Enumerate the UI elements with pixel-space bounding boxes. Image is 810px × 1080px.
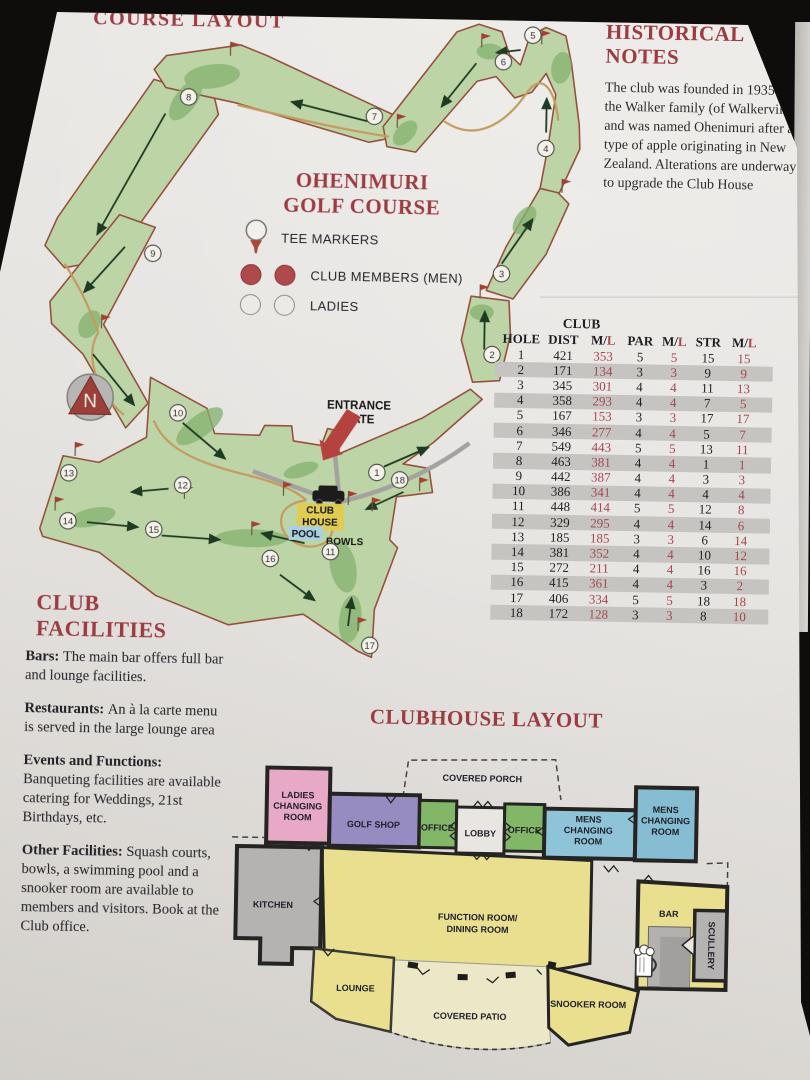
score-cell: 10	[722, 609, 756, 626]
score-cell: 185	[582, 530, 618, 547]
score-cell: 414	[582, 500, 618, 517]
score-cell: 8	[684, 608, 722, 625]
score-cell: 1	[725, 457, 759, 474]
score-cell: 293	[584, 393, 620, 410]
svg-text:BAR: BAR	[659, 909, 679, 919]
flag-icon	[75, 442, 84, 456]
svg-text:OFFICE: OFFICE	[421, 822, 454, 833]
svg-text:11: 11	[325, 547, 335, 558]
score-cell: 14	[724, 533, 758, 550]
score-cell: 3	[618, 531, 656, 548]
score-cell: 346	[540, 423, 584, 440]
score-cell: 353	[585, 348, 621, 365]
score-cell: 13	[687, 441, 725, 458]
score-table-group-header: CLUB	[541, 315, 621, 332]
score-cell: 128	[580, 606, 616, 623]
svg-text:SCULLERY: SCULLERY	[706, 922, 717, 970]
score-cell: 12	[498, 513, 538, 530]
score-col-header: HOLE	[501, 331, 541, 348]
ladies-tee-dot-icon	[240, 294, 261, 315]
score-cell: 4	[686, 486, 724, 503]
score-cell: 4	[620, 394, 658, 411]
score-cell: 4	[618, 485, 656, 502]
svg-text:13: 13	[63, 468, 74, 479]
entrance-gate-label: ENTRANCE	[327, 400, 391, 413]
historical-notes-title: HISTORICALNOTES	[605, 20, 810, 72]
historical-notes-body: The club was founded in 1935 by the Walk…	[603, 79, 810, 197]
score-cell: 185	[538, 529, 582, 546]
compass-icon: N	[67, 374, 114, 421]
page-content: CLUB HOUSE POOL BOWLS ENTRANCE GATE 1234…	[0, 0, 810, 1080]
score-cell: 4	[655, 547, 685, 564]
score-cell: 167	[540, 408, 584, 425]
score-cell: 463	[539, 453, 583, 470]
score-cell: 15	[689, 350, 727, 367]
score-cell: 5	[657, 440, 687, 457]
score-cell: 448	[538, 499, 582, 516]
svg-text:MENS: MENS	[575, 814, 601, 824]
svg-text:1: 1	[374, 468, 379, 479]
score-cell: 5	[616, 591, 654, 608]
facility-section: Restaurants: An à la carte menu is serve…	[24, 699, 227, 741]
hole-marker-9: 9	[144, 245, 161, 262]
svg-text:6: 6	[501, 57, 506, 68]
legend-ladies: LADIES	[240, 294, 490, 320]
score-cell: 415	[537, 575, 581, 592]
covered-patio	[389, 960, 552, 1051]
score-cell: 3	[620, 409, 658, 426]
score-cell: 5	[621, 349, 659, 366]
svg-text:CHANGING: CHANGING	[564, 825, 613, 836]
score-cell: 13	[726, 381, 760, 398]
score-cell: 381	[537, 544, 581, 561]
svg-text:MENS: MENS	[653, 805, 679, 815]
svg-text:LOUNGE: LOUNGE	[336, 983, 375, 994]
svg-text:CHANGING: CHANGING	[273, 801, 322, 812]
score-cell: 4	[617, 576, 655, 593]
score-cell: 277	[583, 424, 619, 441]
score-cell: 9	[727, 366, 761, 383]
score-cell: 171	[541, 362, 585, 379]
score-cell: 2	[501, 362, 541, 379]
score-cell: 4	[658, 395, 688, 412]
score-cell: 3	[500, 377, 540, 394]
score-cell: 6	[724, 518, 758, 535]
score-cell: 10	[498, 483, 538, 500]
hole-marker-8: 8	[180, 89, 197, 106]
score-cell: 3	[658, 410, 688, 427]
legend-tee-markers: TEE MARKERS	[241, 219, 492, 260]
svg-text:4: 4	[543, 144, 548, 155]
score-cell: 15	[727, 350, 761, 367]
score-col-header: M/L	[659, 334, 689, 351]
porch-stub-left	[232, 837, 264, 838]
svg-text:18: 18	[394, 475, 405, 486]
score-cell: 8	[724, 502, 758, 519]
club-facilities-sections: Bars: The main bar offers full bar and l…	[20, 647, 227, 940]
score-cell: 3	[616, 607, 654, 624]
score-cell: 6	[686, 532, 724, 549]
score-cell: 14	[686, 517, 724, 534]
score-cell: 5	[619, 440, 657, 457]
score-cell: 134	[585, 363, 621, 380]
score-cell: 352	[581, 545, 617, 562]
score-cell: 16	[497, 574, 537, 591]
historical-notes: HISTORICALNOTES The club was founded in …	[603, 20, 810, 197]
score-cell: 5	[687, 426, 725, 443]
clubhouse-floor-plan: COVERED PORCH	[220, 687, 779, 1075]
score-cell: 295	[582, 515, 618, 532]
club-facilities: CLUB FACILITIES Bars: The main bar offer…	[20, 589, 229, 954]
score-cell: 4	[620, 379, 658, 396]
score-cell: 1	[501, 346, 541, 363]
svg-text:N: N	[83, 391, 97, 412]
score-cell: 13	[498, 529, 538, 546]
score-cell: 341	[582, 485, 618, 502]
club-facilities-title: CLUB FACILITIES	[36, 589, 229, 645]
score-table: CLUB HOLEDISTM/LPARM/LSTRM/L 14213535515…	[490, 315, 788, 626]
score-cell: 14	[497, 544, 537, 561]
score-cell: 3	[725, 472, 759, 489]
score-cell: 358	[540, 393, 584, 410]
score-cell: 17	[688, 411, 726, 428]
svg-text:OFFICE: OFFICE	[508, 825, 541, 836]
map-title: OHENIMURI GOLF COURSE	[244, 167, 481, 221]
score-cell: 16	[723, 563, 757, 580]
score-cell: 4	[657, 425, 687, 442]
svg-text:15: 15	[148, 525, 159, 536]
score-cell: 18	[722, 593, 756, 610]
score-cell: 4	[619, 424, 657, 441]
photo-of-brochure: CLUB HOUSE POOL BOWLS ENTRANCE GATE 1234…	[0, 0, 810, 1080]
svg-text:7: 7	[372, 112, 377, 123]
hole-marker-7: 7	[366, 108, 383, 125]
svg-text:FUNCTION ROOM/: FUNCTION ROOM/	[438, 912, 518, 923]
hole-marker-10: 10	[170, 404, 187, 421]
svg-text:GOLF SHOP: GOLF SHOP	[347, 819, 400, 830]
score-cell: 4	[658, 380, 688, 397]
fairway-3	[486, 187, 569, 299]
legend-tee-label: TEE MARKERS	[281, 230, 379, 247]
score-cell: 1	[687, 456, 725, 473]
score-cell: 9	[499, 468, 539, 485]
score-cell: 16	[685, 562, 723, 579]
score-cell: 211	[581, 560, 617, 577]
svg-text:9: 9	[150, 249, 155, 260]
legend-club-members: CLUB MEMBERS (MEN)	[240, 264, 490, 290]
hole-marker-16: 16	[262, 550, 279, 567]
hole-marker-12: 12	[174, 477, 191, 494]
score-cell: 361	[581, 576, 617, 593]
score-cell: 5	[500, 407, 540, 424]
score-cell: 549	[539, 438, 583, 455]
score-cell: 12	[686, 502, 724, 519]
paper-crease	[540, 294, 800, 298]
score-cell: 5	[618, 500, 656, 517]
facility-section: Other Facilities: Squash courts, bowls, …	[20, 841, 224, 940]
svg-text:KITCHEN: KITCHEN	[253, 899, 293, 910]
score-cell: 4	[657, 456, 687, 473]
svg-text:17: 17	[364, 641, 375, 652]
svg-text:3: 3	[499, 269, 504, 280]
score-cell: 3	[654, 607, 684, 624]
score-cell: 11	[688, 380, 726, 397]
tee-marker-icon	[241, 219, 272, 256]
score-cell: 7	[499, 437, 539, 454]
facility-section: Bars: The main bar offers full bar and l…	[25, 647, 228, 689]
svg-text:DINING ROOM: DINING ROOM	[446, 924, 508, 935]
score-cell: 11	[498, 498, 538, 515]
score-cell: 329	[538, 514, 582, 531]
score-col-header: DIST	[541, 331, 585, 348]
score-cell: 12	[723, 548, 757, 565]
score-cell: 4	[619, 470, 657, 487]
score-cell: 381	[583, 454, 619, 471]
covered-porch-label: COVERED PORCH	[442, 773, 522, 784]
score-cell: 153	[584, 409, 620, 426]
score-cell: 18	[496, 604, 536, 621]
porch-stub-right	[706, 863, 727, 886]
hole-marker-14: 14	[60, 512, 77, 529]
svg-text:SNOOKER ROOM: SNOOKER ROOM	[550, 999, 626, 1010]
men-tee-dot-icon	[274, 265, 295, 286]
score-cell: 5	[656, 501, 686, 518]
score-cell: 386	[538, 484, 582, 501]
score-cell: 272	[537, 560, 581, 577]
score-cell: 3	[687, 471, 725, 488]
score-col-header: PAR	[621, 333, 659, 350]
svg-text:5: 5	[530, 31, 535, 42]
course-layout-title: COURSE LAYOUT	[93, 7, 285, 34]
facility-section: Events and Functions: Banqueting facilit…	[22, 751, 225, 831]
score-col-header: M/L	[727, 335, 761, 352]
score-cell: 7	[688, 395, 726, 412]
score-col-header: M/L	[585, 332, 621, 349]
score-cell: 3	[659, 364, 689, 381]
score-cell: 4	[500, 392, 540, 409]
score-cell: 6	[500, 422, 540, 439]
svg-text:LADIES: LADIES	[281, 790, 314, 801]
score-cell: 4	[656, 516, 686, 533]
score-cell: 17	[496, 589, 536, 606]
hole-marker-18: 18	[391, 472, 408, 489]
score-cell: 8	[499, 453, 539, 470]
map-title-line2: GOLF COURSE	[244, 192, 480, 221]
hole-marker-15: 15	[145, 521, 162, 538]
score-cell: 4	[655, 577, 685, 594]
score-cell: 442	[539, 469, 583, 486]
score-cell: 301	[584, 378, 620, 395]
score-cell: 443	[583, 439, 619, 456]
score-cell: 9	[689, 365, 727, 382]
score-cell: 15	[497, 559, 537, 576]
score-cell: 421	[541, 347, 585, 364]
svg-text:ROOM: ROOM	[283, 812, 311, 823]
score-cell: 2	[723, 578, 757, 595]
map-legend: TEE MARKERS CLUB MEMBERS (MEN) LADIES	[240, 219, 492, 329]
score-cell: 4	[617, 561, 655, 578]
svg-text:LOBBY: LOBBY	[464, 828, 496, 839]
score-cell: 4	[655, 562, 685, 579]
svg-text:12: 12	[177, 480, 188, 491]
score-cell: 3	[685, 578, 723, 595]
score-cell: 3	[621, 364, 659, 381]
score-cell: 7	[725, 426, 759, 443]
score-cell: 5	[726, 396, 760, 413]
hole-marker-13: 13	[60, 464, 77, 481]
hole-marker-5: 5	[525, 27, 542, 44]
score-cell: 4	[724, 487, 758, 504]
svg-text:CHANGING: CHANGING	[641, 815, 690, 826]
svg-text:10: 10	[173, 408, 184, 419]
club-house-label: CLUB	[306, 505, 334, 517]
svg-text:16: 16	[265, 554, 276, 565]
svg-text:COVERED PATIO: COVERED PATIO	[433, 1011, 506, 1022]
svg-text:ROOM: ROOM	[651, 827, 679, 838]
score-cell: 4	[619, 455, 657, 472]
hole-marker-11: 11	[322, 543, 339, 560]
score-cell: 334	[580, 591, 616, 608]
svg-text:14: 14	[63, 516, 74, 527]
score-cell: 172	[536, 605, 580, 622]
legend-ladies-label: LADIES	[310, 298, 359, 314]
score-cell: 5	[654, 592, 684, 609]
svg-text:8: 8	[186, 92, 191, 103]
men-tee-dot-icon	[240, 264, 261, 285]
brochure-page: CLUB HOUSE POOL BOWLS ENTRANCE GATE 1234…	[0, 0, 810, 1080]
score-cell: 406	[536, 590, 580, 607]
svg-text:ROOM: ROOM	[574, 836, 602, 847]
score-cell: 11	[725, 442, 759, 459]
hole-marker-6: 6	[495, 53, 512, 70]
hole-marker-1: 1	[369, 464, 386, 481]
score-cell: 17	[726, 411, 760, 428]
score-cell: 5	[659, 349, 689, 366]
hole-marker-3: 3	[493, 265, 510, 282]
pool-label: POOL	[291, 529, 320, 541]
score-cell: 18	[684, 593, 722, 610]
score-cell: 4	[656, 486, 686, 503]
score-cell: 10	[685, 547, 723, 564]
score-col-header: STR	[689, 334, 727, 351]
score-cell: 345	[540, 377, 584, 394]
score-table-rows: 1421353551515217113433993345301441113435…	[490, 347, 787, 626]
hole-marker-4: 4	[537, 140, 554, 157]
score-cell: 4	[618, 516, 656, 533]
score-cell: 4	[617, 546, 655, 563]
legend-men-label: CLUB MEMBERS (MEN)	[310, 268, 463, 286]
score-cell: 4	[657, 471, 687, 488]
ladies-tee-dot-icon	[274, 295, 295, 316]
score-cell: 387	[583, 469, 619, 486]
score-cell: 3	[656, 531, 686, 548]
hole-marker-17: 17	[361, 637, 378, 654]
